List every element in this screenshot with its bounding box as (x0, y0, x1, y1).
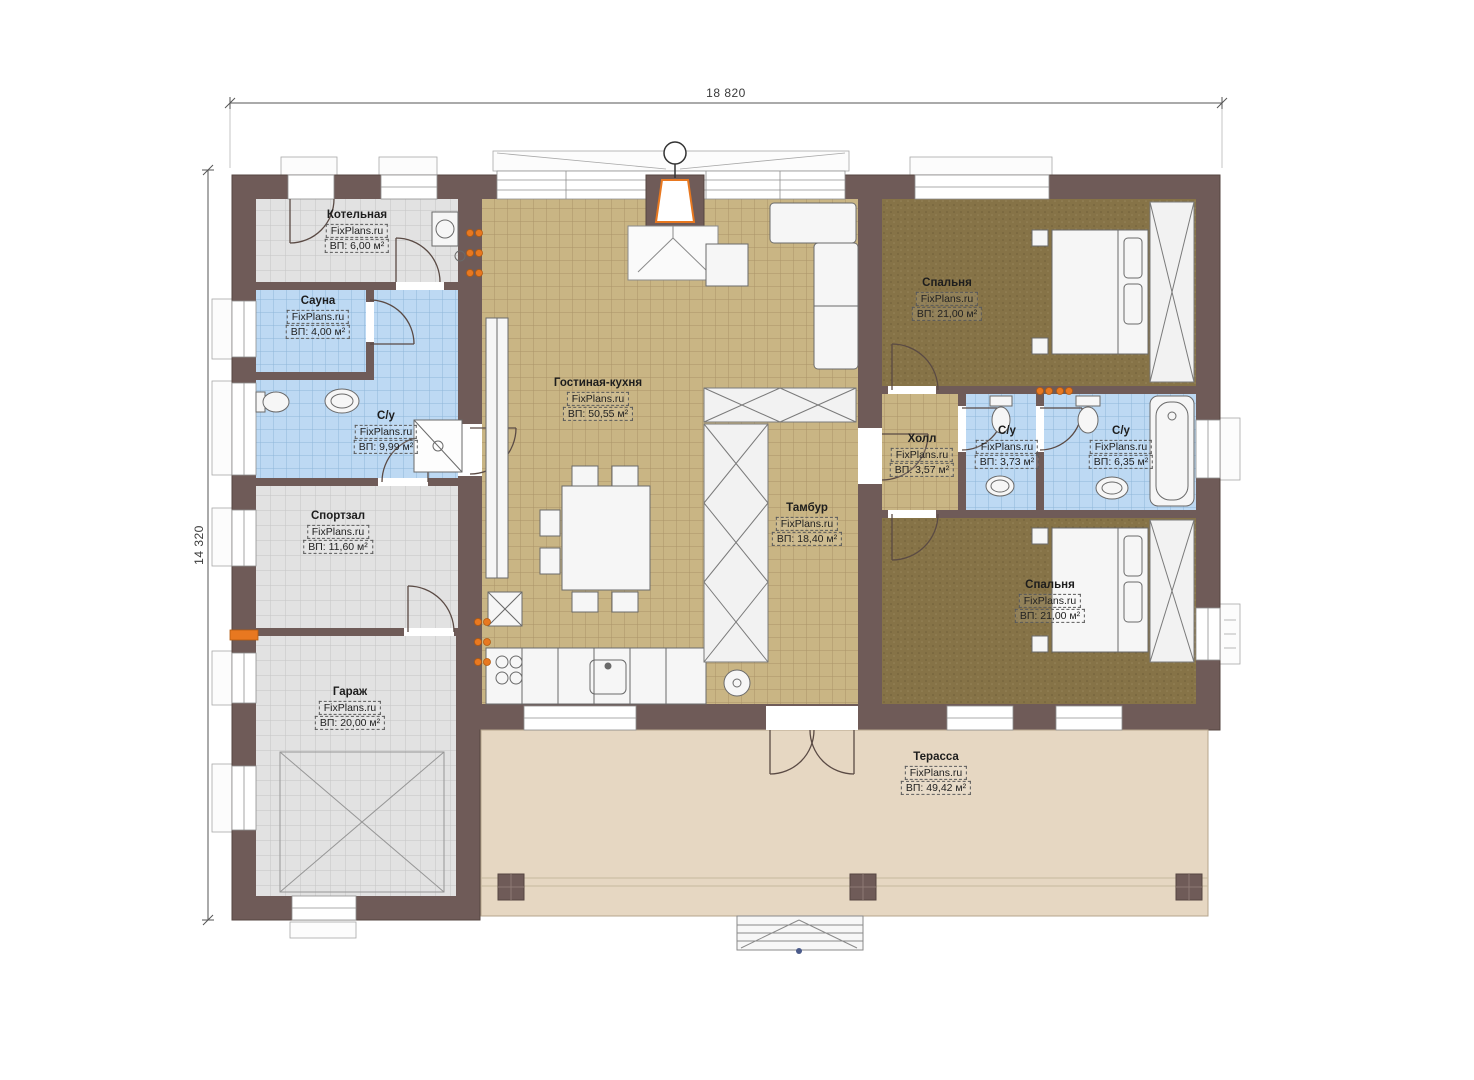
toilet-symbol (256, 392, 289, 412)
stool-symbol (724, 670, 750, 696)
dimension-width-label: 18 820 (706, 86, 746, 100)
room-name: Котельная (325, 209, 389, 222)
room-area: ВП: 50,55 м² (563, 407, 633, 421)
room-name: Спальня (1015, 579, 1085, 592)
room-label-terrace: Терасса FixPlans.ru ВП: 49,42 м² (901, 751, 971, 795)
watermark: FixPlans.ru (976, 440, 1039, 454)
room-label-hall: Холл FixPlans.ru ВП: 3,57 м² (890, 433, 954, 477)
watermark: FixPlans.ru (905, 766, 968, 780)
room-area: ВП: 20,00 м² (315, 716, 385, 730)
room-label-bedroom-bottom: Спальня FixPlans.ru ВП: 21,00 м² (1015, 579, 1085, 623)
floor-plan-drawing (0, 0, 1474, 1080)
watermark: FixPlans.ru (307, 525, 370, 539)
room-label-tambour: Тамбур FixPlans.ru ВП: 18,40 м² (772, 502, 842, 546)
room-area: ВП: 3,57 м² (890, 463, 954, 477)
room-label-bath-left: С/у FixPlans.ru ВП: 9,99 м² (354, 410, 418, 454)
room-label-bedroom-top: Спальня FixPlans.ru ВП: 21,00 м² (912, 277, 982, 321)
room-name: С/у (354, 410, 418, 423)
watermark: FixPlans.ru (287, 310, 350, 324)
dimension-height-label: 14 320 (192, 525, 206, 565)
room-name: Сауна (286, 295, 350, 308)
room-label-bath-small: С/у FixPlans.ru ВП: 3,73 м² (975, 425, 1039, 469)
wardrobe-symbol (1150, 202, 1194, 382)
wall-heater-symbol (230, 630, 258, 640)
room-label-bath-big: С/у FixPlans.ru ВП: 6,35 м² (1089, 425, 1153, 469)
room-garage-floor (256, 636, 456, 896)
room-name: Холл (890, 433, 954, 446)
watermark: FixPlans.ru (567, 392, 630, 406)
sink-symbol (1096, 477, 1128, 499)
watermark: FixPlans.ru (1019, 594, 1082, 608)
room-label-sauna: Сауна FixPlans.ru ВП: 4,00 м² (286, 295, 350, 339)
room-label-living-kitchen: Гостиная-кухня FixPlans.ru ВП: 50,55 м² (554, 377, 642, 421)
room-area: ВП: 9,99 м² (354, 440, 418, 454)
watermark: FixPlans.ru (1090, 440, 1153, 454)
room-area: ВП: 4,00 м² (286, 325, 350, 339)
room-name: Тамбур (772, 502, 842, 515)
coffee-table-symbol (706, 244, 748, 286)
room-area: ВП: 18,40 м² (772, 532, 842, 546)
room-name: Спальня (912, 277, 982, 290)
room-area: ВП: 21,00 м² (912, 307, 982, 321)
terrace-floor (481, 730, 1208, 916)
kitchen-unit-symbol (488, 592, 522, 626)
room-name: С/у (1089, 425, 1153, 438)
room-label-gym: Спортзал FixPlans.ru ВП: 11,60 м² (303, 510, 373, 554)
watermark: FixPlans.ru (891, 448, 954, 462)
room-area: ВП: 11,60 м² (303, 540, 373, 554)
watermark: FixPlans.ru (916, 292, 979, 306)
tv-cabinet-symbol (486, 318, 508, 578)
shower-symbol (414, 420, 462, 472)
stairs-symbol (737, 916, 863, 954)
room-label-garage: Гараж FixPlans.ru ВП: 20,00 м² (315, 686, 385, 730)
room-area: ВП: 6,00 м² (325, 239, 389, 253)
floor-plan-page: 18 820 14 320 Котельная FixPlans.ru ВП: … (0, 0, 1474, 1080)
room-label-boiler: Котельная FixPlans.ru ВП: 6,00 м² (325, 209, 389, 253)
room-area: ВП: 3,73 м² (975, 455, 1039, 469)
room-name: Терасса (901, 751, 971, 764)
sink-symbol (986, 476, 1014, 496)
bathtub-symbol (1150, 396, 1194, 506)
room-name: Спортзал (303, 510, 373, 523)
room-area: ВП: 6,35 м² (1089, 455, 1153, 469)
watermark: FixPlans.ru (319, 701, 382, 715)
room-area: ВП: 21,00 м² (1015, 609, 1085, 623)
room-name: Гостиная-кухня (554, 377, 642, 390)
watermark: FixPlans.ru (776, 517, 839, 531)
room-area: ВП: 49,42 м² (901, 781, 971, 795)
room-name: Гараж (315, 686, 385, 699)
watermark: FixPlans.ru (326, 224, 389, 238)
wardrobe-symbol (1150, 520, 1194, 662)
room-gym-floor (256, 486, 458, 628)
watermark: FixPlans.ru (355, 425, 418, 439)
room-name: С/у (975, 425, 1039, 438)
